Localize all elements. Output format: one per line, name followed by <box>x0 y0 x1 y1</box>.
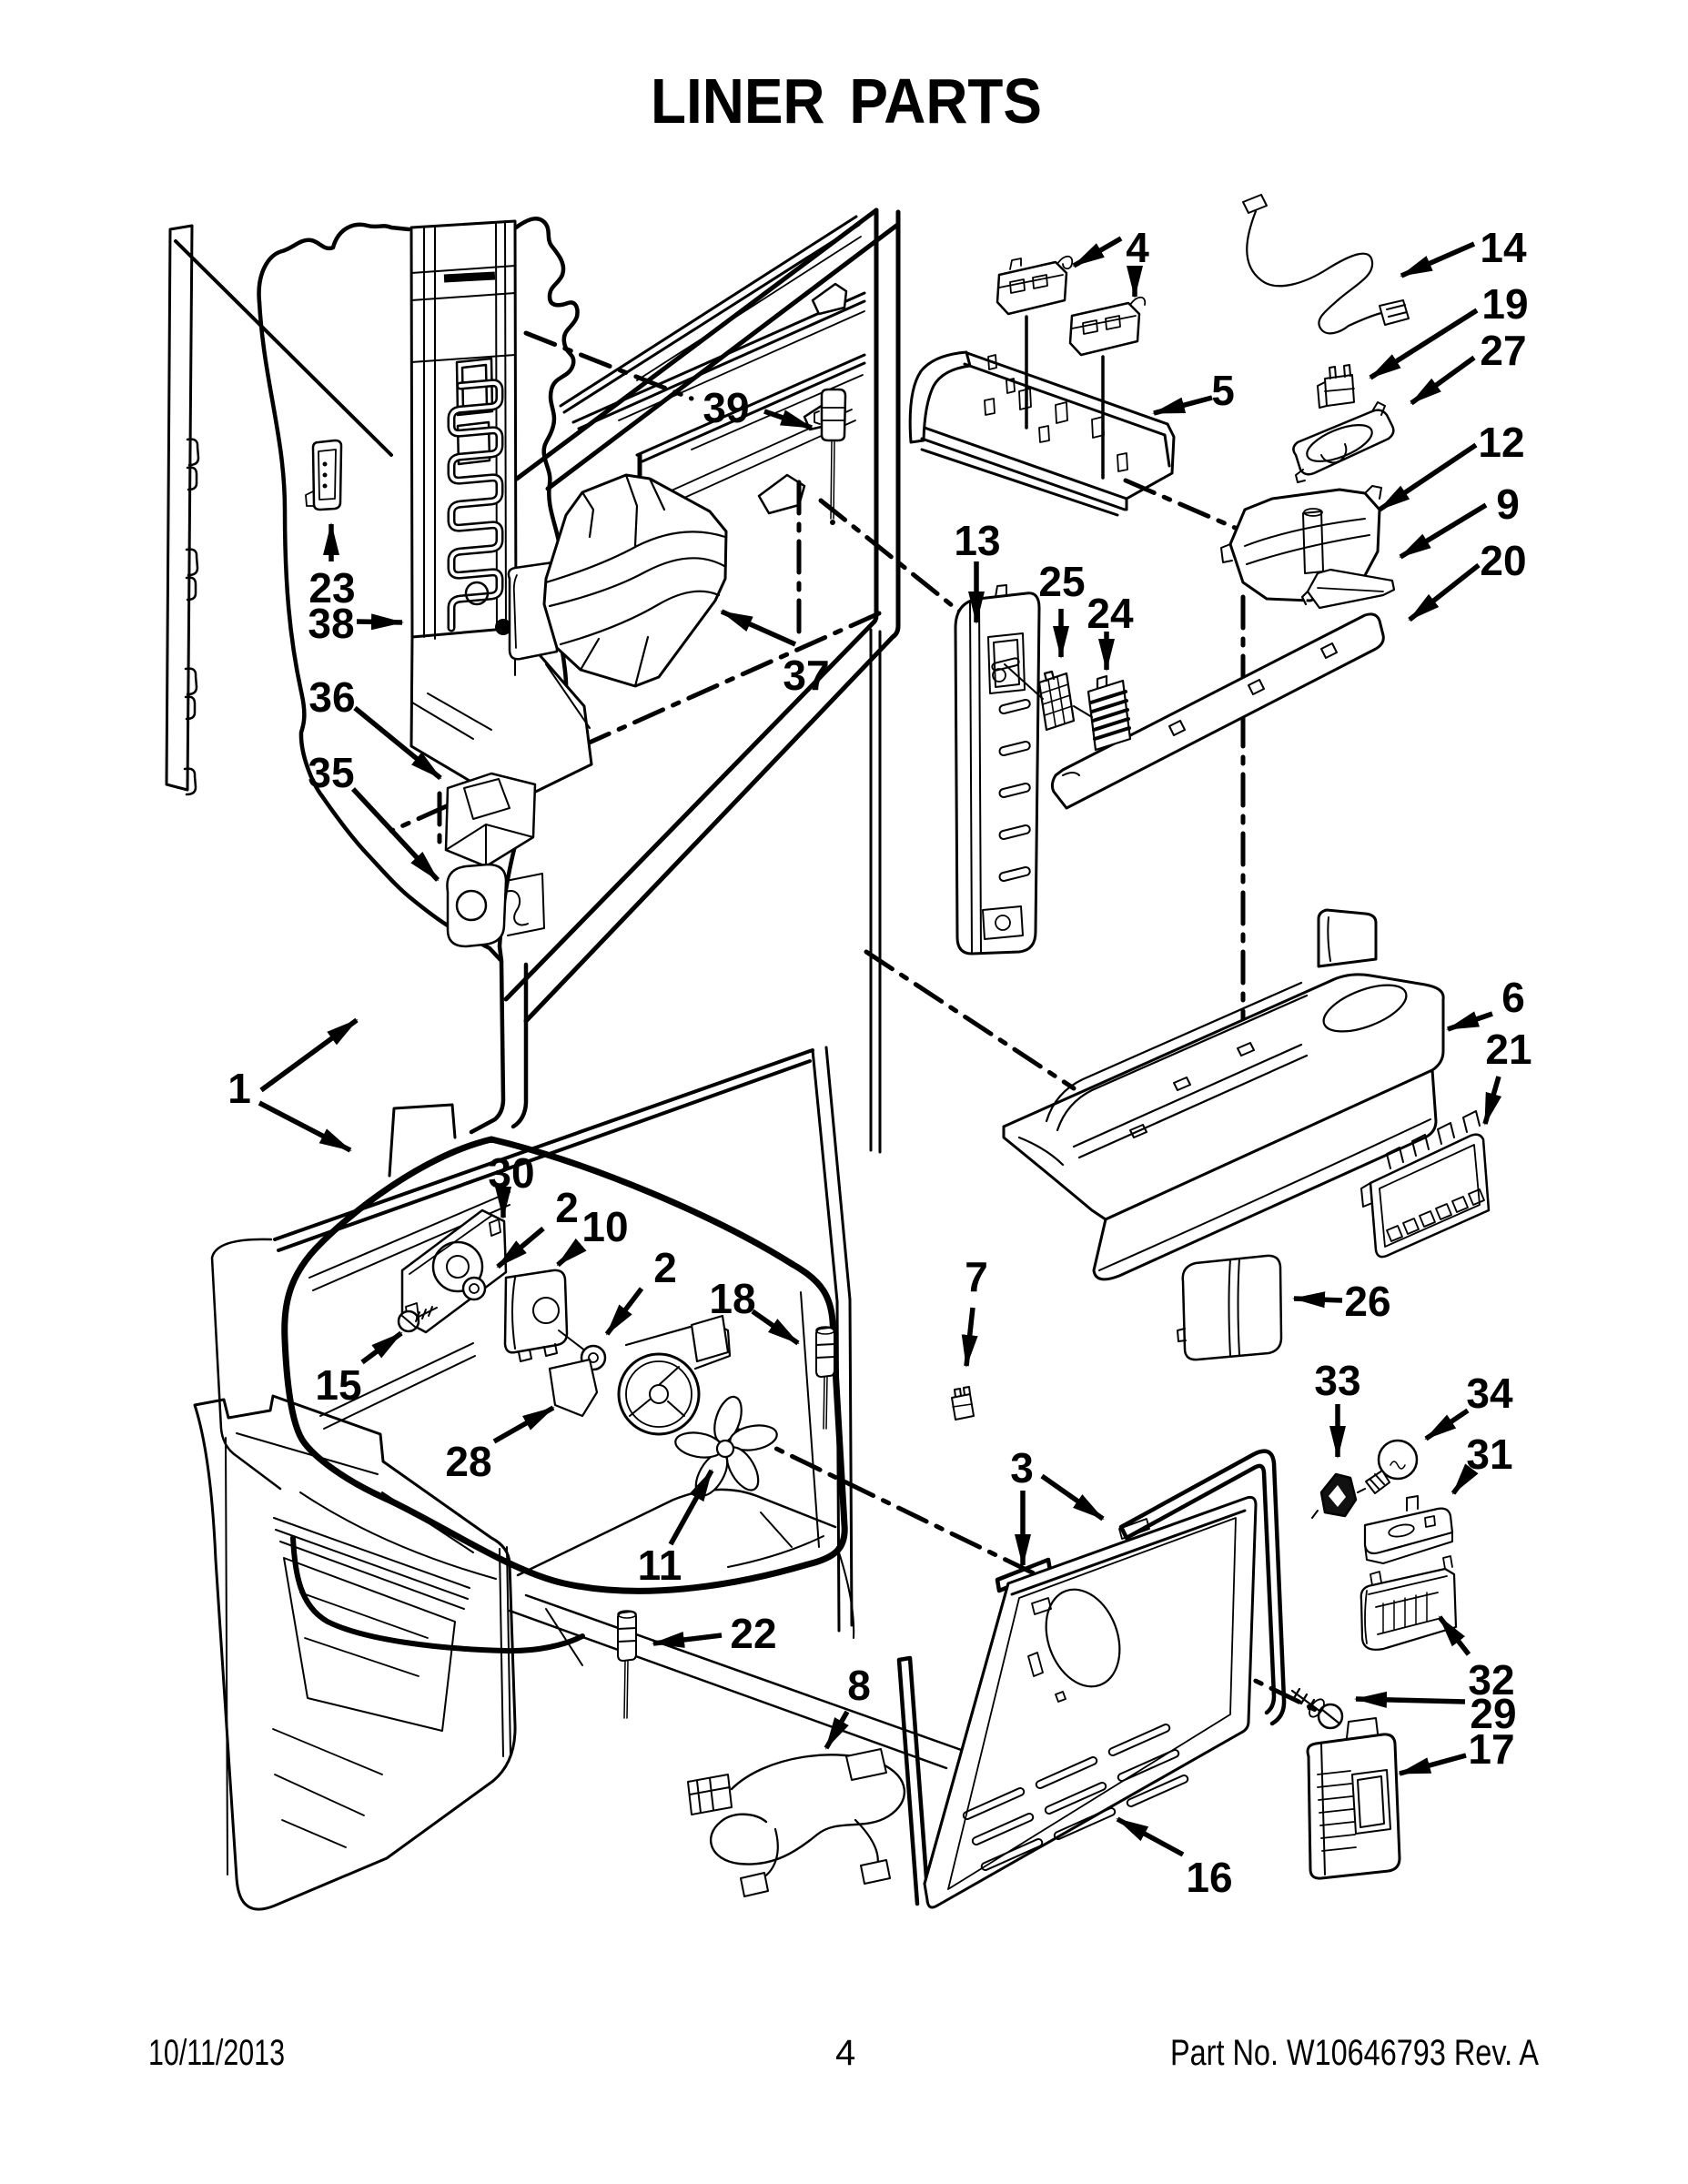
svg-text:21: 21 <box>1485 1026 1531 1073</box>
svg-text:39: 39 <box>702 384 749 431</box>
svg-text:9: 9 <box>1496 480 1520 528</box>
svg-text:30: 30 <box>488 1149 534 1197</box>
svg-text:11: 11 <box>638 1542 682 1589</box>
svg-text:LINER PARTS: LINER PARTS <box>651 66 1042 136</box>
svg-text:26: 26 <box>1344 1278 1390 1325</box>
svg-text:1: 1 <box>227 1065 251 1112</box>
svg-text:16: 16 <box>1186 1854 1232 1901</box>
svg-text:4: 4 <box>835 2033 855 2073</box>
svg-text:3: 3 <box>1010 1444 1034 1491</box>
svg-text:13: 13 <box>954 517 1000 564</box>
svg-text:4: 4 <box>1126 224 1149 271</box>
svg-text:33: 33 <box>1314 1357 1360 1404</box>
svg-text:18: 18 <box>709 1275 755 1322</box>
svg-text:14: 14 <box>1480 224 1527 271</box>
svg-text:22: 22 <box>730 1610 776 1657</box>
svg-text:37: 37 <box>783 652 829 699</box>
svg-text:10: 10 <box>581 1203 628 1250</box>
svg-text:8: 8 <box>847 1662 871 1709</box>
svg-text:19: 19 <box>1481 280 1528 328</box>
svg-text:27: 27 <box>1480 327 1526 374</box>
svg-text:12: 12 <box>1478 419 1524 466</box>
svg-text:10/11/2013: 10/11/2013 <box>148 2033 285 2073</box>
svg-text:32: 32 <box>1468 1656 1514 1704</box>
svg-text:31: 31 <box>1466 1431 1512 1478</box>
svg-text:24: 24 <box>1087 590 1134 637</box>
svg-text:Part No. W10646793 Rev. A: Part No. W10646793 Rev. A <box>1170 2033 1539 2073</box>
svg-text:6: 6 <box>1501 974 1525 1021</box>
svg-text:38: 38 <box>308 600 354 647</box>
svg-text:2: 2 <box>653 1244 677 1291</box>
svg-text:7: 7 <box>965 1253 988 1300</box>
svg-text:20: 20 <box>1480 537 1526 584</box>
svg-text:35: 35 <box>308 749 354 796</box>
svg-text:28: 28 <box>445 1438 491 1485</box>
svg-text:36: 36 <box>308 673 355 721</box>
svg-text:25: 25 <box>1038 558 1085 605</box>
svg-text:2: 2 <box>555 1184 579 1231</box>
svg-text:5: 5 <box>1211 367 1235 414</box>
svg-text:34: 34 <box>1466 1370 1513 1417</box>
svg-text:15: 15 <box>315 1361 361 1409</box>
